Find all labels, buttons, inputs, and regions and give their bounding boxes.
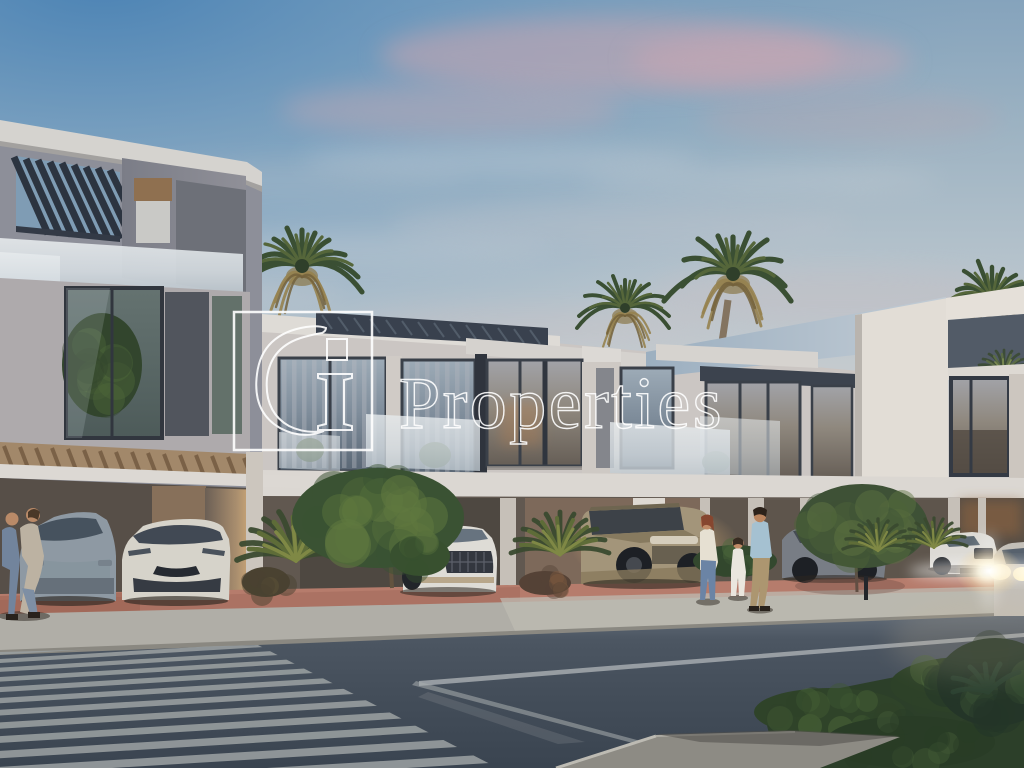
svg-text:Properties: Properties bbox=[399, 363, 724, 445]
